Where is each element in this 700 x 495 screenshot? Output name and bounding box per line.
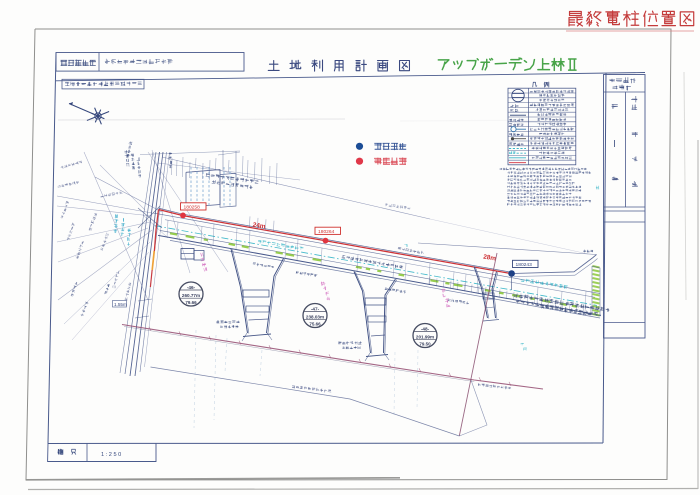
svg-text:180258: 180258 [184,204,201,210]
svg-text:238.03m: 238.03m [306,314,324,319]
svg-text:-47-: -47- [311,307,320,312]
svg-text:260.77m: 260.77m [182,293,200,298]
svg-text:75.66: 75.66 [309,322,321,327]
svg-text:79.66: 79.66 [185,300,197,305]
svg-text:-46-: -46- [187,285,196,290]
svg-text:180243: 180243 [516,262,533,268]
svg-text:1 : 2 5 0: 1 : 2 5 0 [101,452,121,458]
svg-text:-48-: -48- [421,327,430,332]
svg-text:180264: 180264 [318,229,335,235]
svg-text:1.55m: 1.55m [114,302,127,307]
svg-text:79.50: 79.50 [419,342,431,347]
svg-text:201.99m: 201.99m [416,334,434,339]
